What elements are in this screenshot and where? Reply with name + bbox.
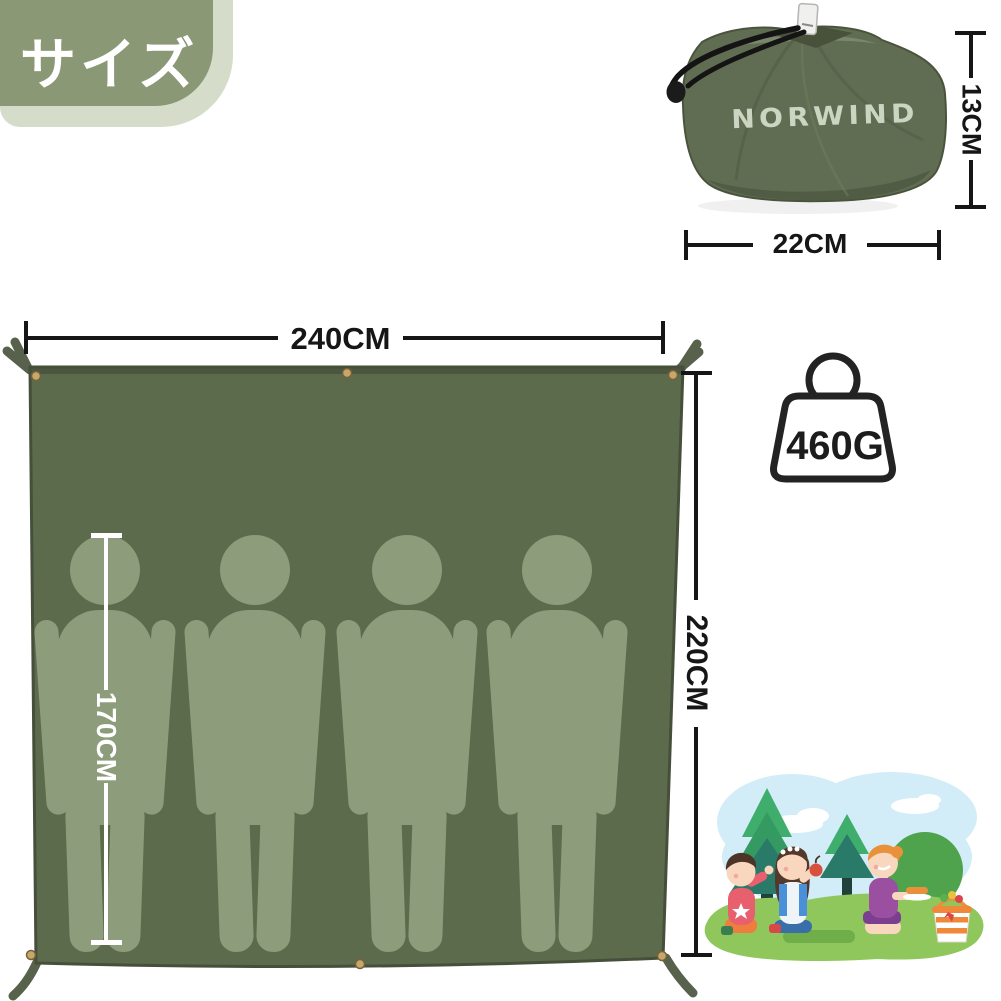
tarp-top-hem bbox=[30, 367, 683, 374]
person-height-line-top bbox=[104, 537, 108, 690]
tarp-width-dim-cap-right bbox=[661, 321, 665, 354]
pouch-height-dim-line-top bbox=[969, 34, 973, 78]
pouch-width-dim-line-right bbox=[867, 243, 939, 247]
tarp-graphic bbox=[0, 330, 720, 1001]
person-height-cap-bottom bbox=[91, 940, 122, 945]
pouch-width-dim-cap-left bbox=[684, 230, 688, 260]
pouch-width-dim-label: 22CM bbox=[753, 228, 867, 260]
person-height-line-bottom bbox=[104, 783, 108, 943]
pouch-height-dim-label: 13CM bbox=[958, 80, 985, 160]
tarp-height-dim-cap-top bbox=[681, 371, 712, 375]
tarp-height-dim-label: 220CM bbox=[681, 608, 711, 718]
product-size-diagram: サイズ NORWIND 13CM 22CM bbox=[0, 0, 1001, 1001]
hang-clip bbox=[797, 3, 818, 34]
tarp-width-dim-label: 240CM bbox=[278, 321, 403, 357]
pouch-height-dim-cap-bottom bbox=[955, 205, 986, 209]
pouch-width-dim-cap-right bbox=[937, 230, 941, 260]
cord-lock-toggle bbox=[667, 81, 686, 103]
pouch-height-dim-line-bottom bbox=[969, 160, 973, 207]
person-height-cap-top bbox=[91, 533, 122, 538]
person-height-label: 170CM bbox=[92, 682, 120, 792]
tarp-width-dim-cap-left bbox=[24, 321, 28, 354]
kids-picnic-illustration bbox=[697, 762, 997, 997]
tarp-width-dim-line-left bbox=[26, 336, 278, 340]
pouch-width-dim-line-left bbox=[687, 243, 753, 247]
pouch-height-dim-cap-top bbox=[955, 31, 986, 35]
size-badge-label: サイズ bbox=[20, 20, 200, 101]
tarp-width-dim-line-right bbox=[403, 336, 663, 340]
weight-label: 460G bbox=[765, 424, 905, 469]
tarp-height-dim-line-top bbox=[694, 375, 698, 600]
